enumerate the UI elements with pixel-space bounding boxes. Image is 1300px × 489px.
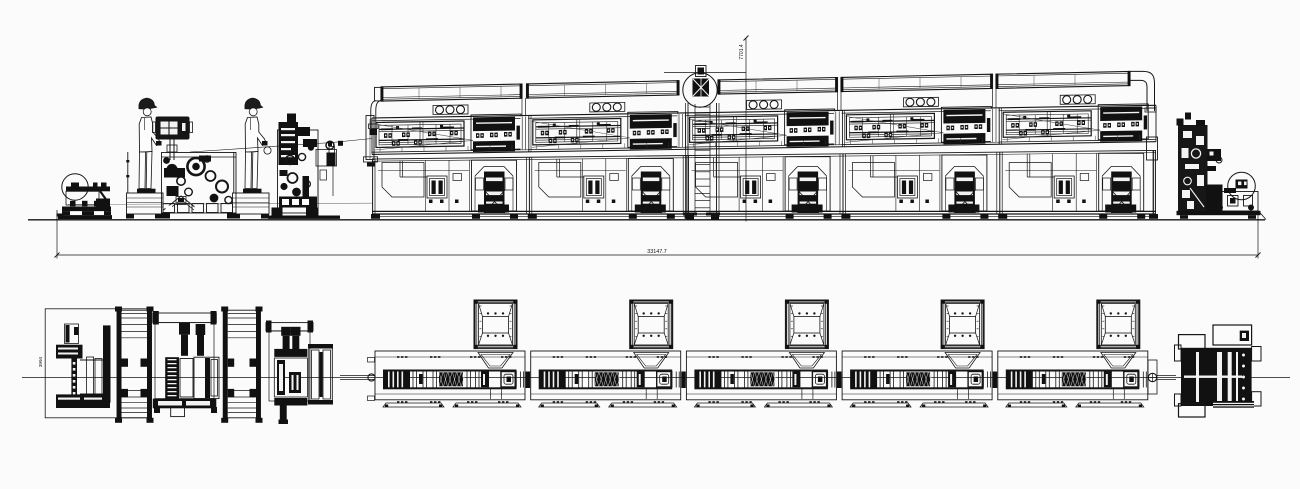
svg-text:7701.4: 7701.4 — [739, 44, 745, 60]
svg-text:3994: 3994 — [38, 356, 43, 367]
svg-text:33147.7: 33147.7 — [647, 249, 667, 255]
